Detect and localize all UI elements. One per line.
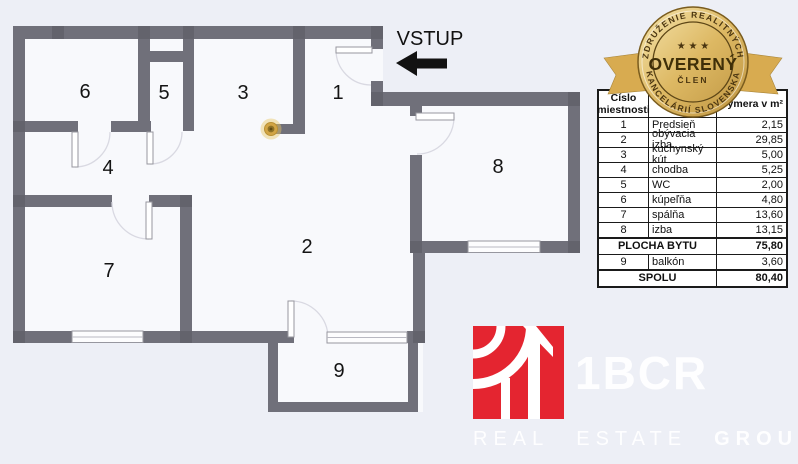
floorplan-sheet: { "colors": { "page_bg": "#edeff6", "pla… xyxy=(0,0,798,464)
table-row: 7 spálňa 13,60 xyxy=(599,207,786,222)
camera-dot-icon xyxy=(261,119,282,140)
total-value: 80,40 xyxy=(717,271,786,286)
table-row: 8 izba 13,15 xyxy=(599,222,786,237)
room-label-9: 9 xyxy=(333,360,344,382)
room-label-7: 7 xyxy=(103,260,114,282)
subtotal-value: 75,80 xyxy=(717,239,786,254)
badge-member-label: ČLEN xyxy=(677,74,708,85)
room-label-5: 5 xyxy=(158,82,169,104)
room-label-1: 1 xyxy=(332,82,343,104)
total-row: SPOLU 80,40 xyxy=(599,269,786,286)
entrance-label: VSTUP xyxy=(397,28,464,50)
room-label-3: 3 xyxy=(237,82,248,104)
room-label-2: 2 xyxy=(301,236,312,258)
table-row: 4 chodba 5,25 xyxy=(599,162,786,177)
room-label-4: 4 xyxy=(102,157,113,179)
brand-tagline: REAL ESTATE GROUP xyxy=(473,428,798,451)
tagline-word-real: REAL xyxy=(473,428,549,451)
brand-name: 1BCR xyxy=(575,346,708,400)
subtotal-row: PLOCHA BYTU 75,80 xyxy=(599,237,786,254)
table-row-balcony: 9 balkón 3,60 xyxy=(599,254,786,269)
room-label-6: 6 xyxy=(79,81,90,103)
tagline-word-group: GROUP xyxy=(714,428,798,451)
tagline-word-estate: ESTATE xyxy=(576,428,687,451)
table-row: 3 kuchynský kút 5,00 xyxy=(599,147,786,162)
badge-stars-icon: ★ ★ ★ xyxy=(677,41,709,52)
brand-logo-icon xyxy=(473,326,564,419)
table-row: 6 kúpeľňa 4,80 xyxy=(599,192,786,207)
table-row: 5 WC 2,00 xyxy=(599,177,786,192)
subtotal-label: PLOCHA BYTU xyxy=(599,239,717,254)
certification-badge: ZDRUŽENIE REALITNÝCH KANCELÁRIÍ SLOVENSK… xyxy=(600,2,788,126)
entrance-arrow-icon xyxy=(396,51,447,76)
total-label: SPOLU xyxy=(599,271,717,286)
room-label-8: 8 xyxy=(492,156,503,178)
badge-title: OVERENÝ xyxy=(648,53,737,74)
